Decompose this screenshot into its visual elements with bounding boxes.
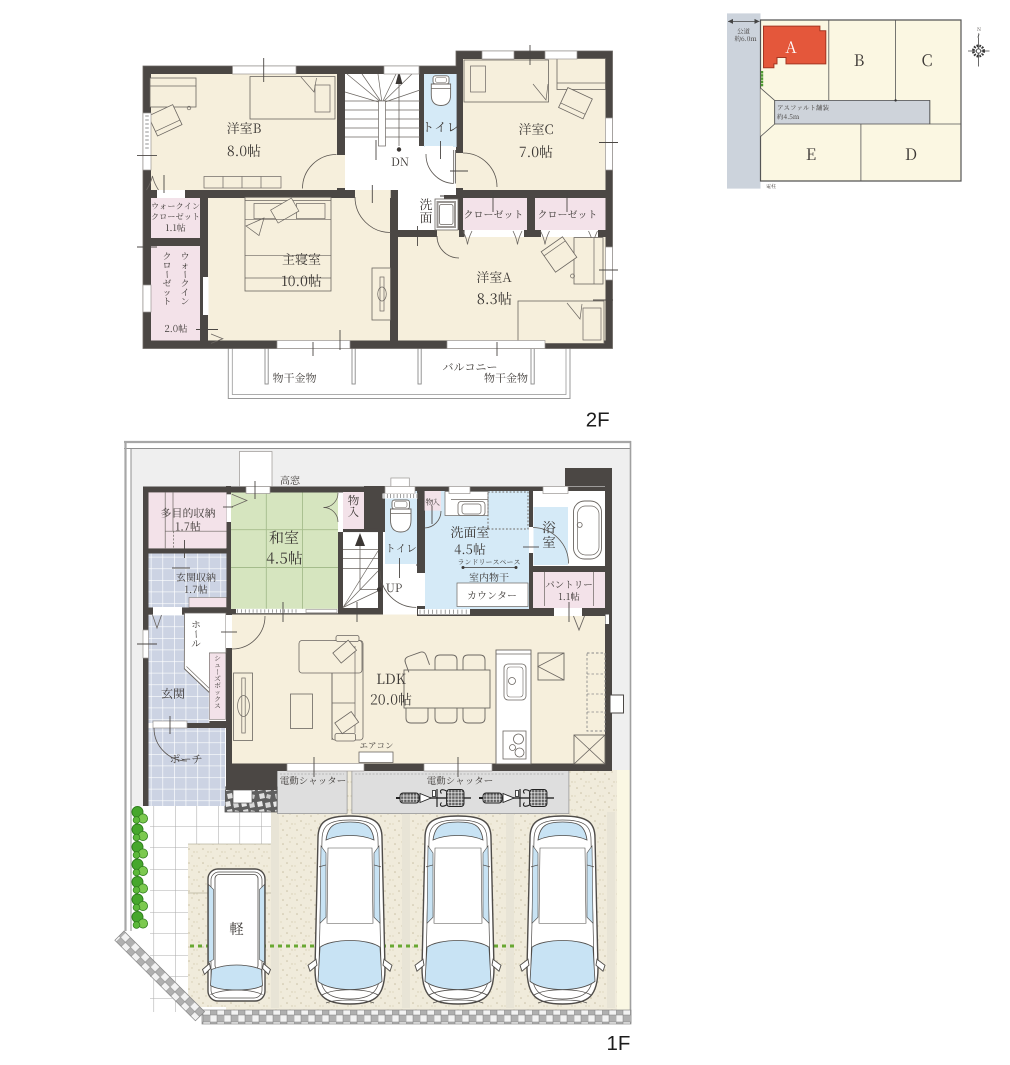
svg-text:2F: 2F (586, 409, 610, 432)
svg-text:1F: 1F (607, 1032, 631, 1055)
